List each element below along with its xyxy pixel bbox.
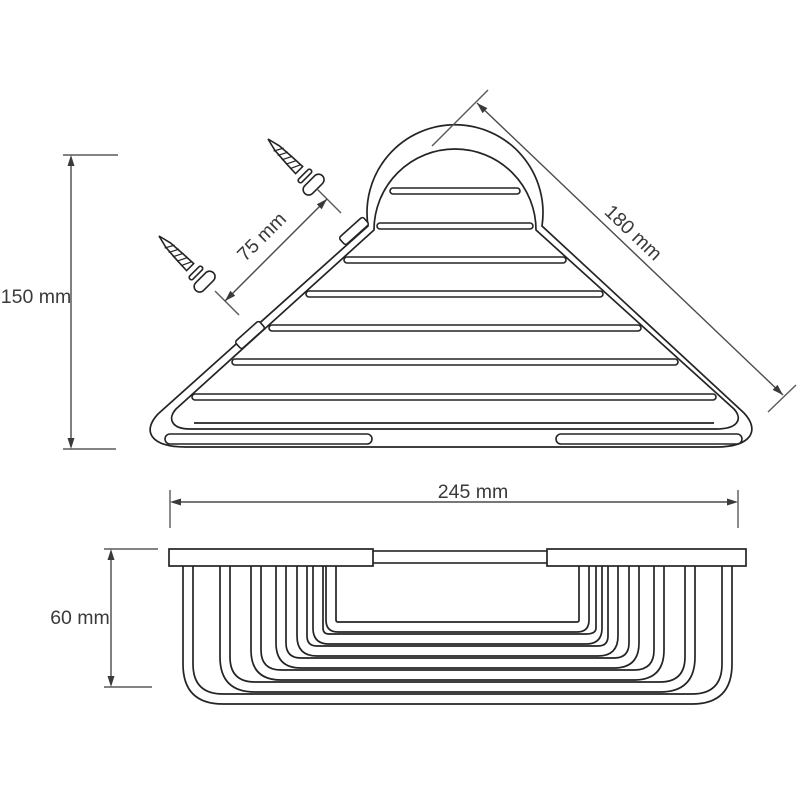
basket-rung bbox=[269, 325, 641, 331]
front-view bbox=[169, 549, 746, 704]
front-hook-right bbox=[556, 434, 742, 444]
extension-tick bbox=[317, 189, 341, 213]
front-hook-left bbox=[165, 434, 372, 444]
wire-loop-inner bbox=[336, 565, 579, 622]
dimension-245: 245 mm bbox=[170, 481, 738, 528]
back-rim-bar bbox=[371, 551, 549, 563]
mounting-screw-icon bbox=[150, 227, 217, 294]
mounting-screw-icon bbox=[259, 130, 326, 197]
front-rim-bar-left bbox=[169, 549, 373, 566]
extension-tick bbox=[215, 291, 239, 315]
dimension-150: 150 mm bbox=[1, 155, 118, 449]
basket-rung bbox=[192, 394, 716, 400]
corner-basket-technical-drawing: 150 mm 75 mm 180 mm 245 mm bbox=[0, 0, 800, 800]
arrowhead bbox=[68, 438, 75, 449]
dimension-label-offset: 75 mm bbox=[233, 208, 291, 266]
nested-wire-loops bbox=[183, 565, 732, 704]
arrowhead bbox=[68, 155, 75, 166]
arrowhead bbox=[727, 499, 738, 506]
basket-rung bbox=[377, 223, 533, 229]
extension-tick bbox=[768, 385, 796, 412]
basket-rung bbox=[390, 188, 520, 194]
dimension-label-height: 150 mm bbox=[1, 286, 71, 308]
basket-rung bbox=[306, 291, 603, 297]
dimension-label-depth: 60 mm bbox=[50, 607, 110, 629]
dimension-60: 60 mm bbox=[50, 549, 158, 687]
basket-rung bbox=[232, 359, 678, 365]
drawing-canvas: 150 mm 75 mm 180 mm 245 mm bbox=[0, 0, 800, 800]
front-rim-bar-right bbox=[547, 549, 746, 566]
basket-rung bbox=[344, 257, 566, 263]
dimension-label-width: 245 mm bbox=[438, 481, 508, 503]
dimension-label-side: 180 mm bbox=[600, 201, 666, 266]
arrowhead bbox=[108, 549, 115, 560]
screw-shaft bbox=[264, 135, 302, 173]
arrowhead bbox=[108, 676, 115, 687]
arrowhead bbox=[170, 499, 181, 506]
screw-shaft bbox=[155, 232, 193, 270]
